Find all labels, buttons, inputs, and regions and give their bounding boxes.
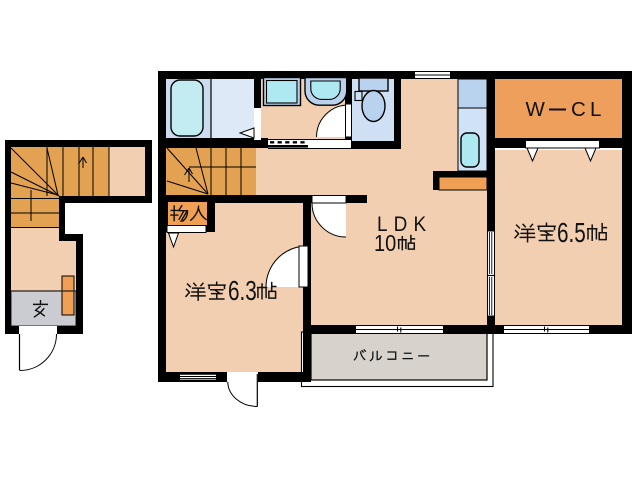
svg-text:L: L: [590, 98, 601, 121]
svg-text:10: 10: [374, 229, 396, 256]
svg-text:6.3: 6.3: [228, 276, 257, 307]
svg-text:C: C: [571, 98, 586, 121]
svg-text:6.5: 6.5: [557, 218, 586, 249]
svg-text:W: W: [526, 98, 546, 121]
